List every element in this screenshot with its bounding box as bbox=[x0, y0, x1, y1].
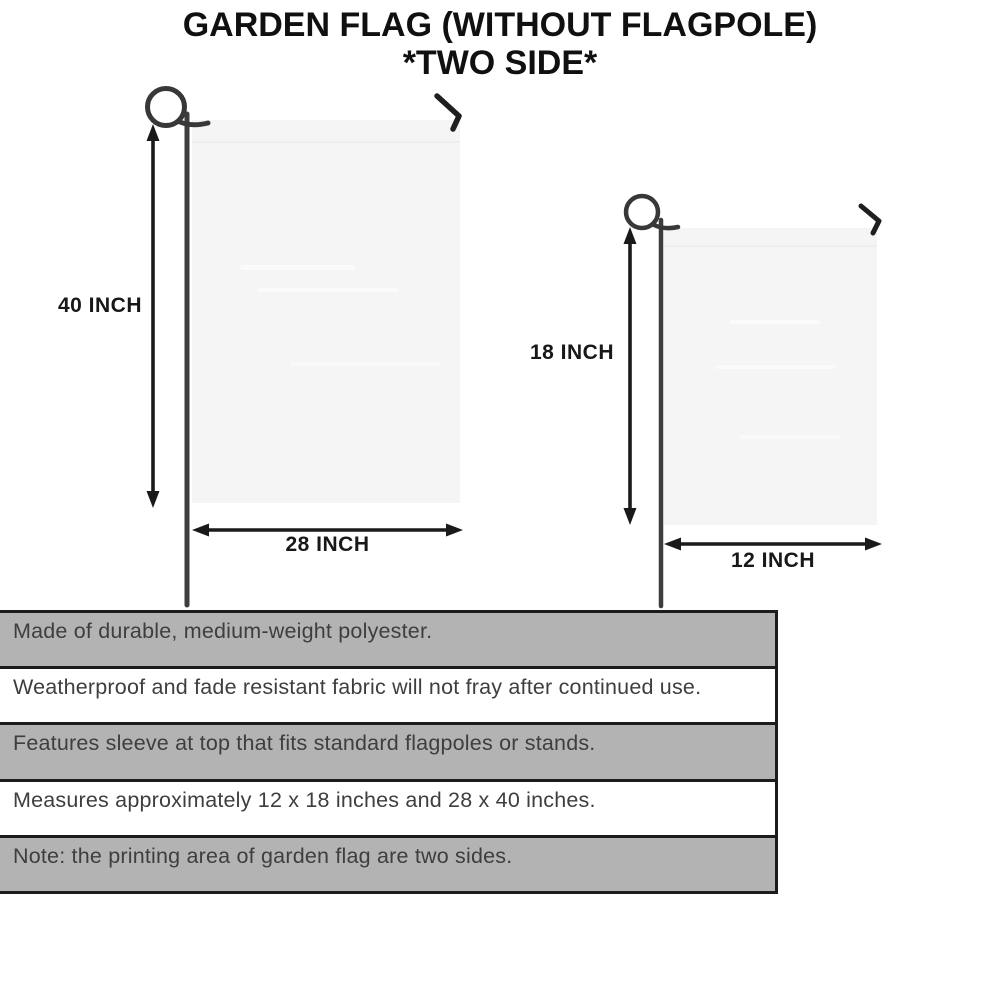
page-title: GARDEN FLAG (WITHOUT FLAGPOLE) *TWO SIDE… bbox=[0, 6, 1000, 82]
width-label-large: 28 INCH bbox=[191, 533, 464, 557]
height-arrow-small bbox=[617, 224, 643, 528]
height-arrow-large bbox=[140, 121, 166, 511]
height-label-large: 40 INCH bbox=[18, 294, 142, 318]
fold-highlight bbox=[240, 265, 355, 270]
arrow-head-down-icon bbox=[147, 491, 160, 508]
feature-row: Note: the printing area of garden flag a… bbox=[0, 838, 775, 891]
garden-flag-infographic: GARDEN FLAG (WITHOUT FLAGPOLE) *TWO SIDE… bbox=[0, 0, 1000, 1000]
fold-highlight bbox=[258, 288, 398, 292]
fold-highlight bbox=[290, 362, 440, 366]
flag-canvas-small bbox=[664, 228, 877, 525]
flagpole-loop-tail bbox=[654, 225, 678, 228]
width-label-small: 12 INCH bbox=[663, 549, 883, 573]
feature-table: Made of durable, medium-weight polyester… bbox=[0, 610, 778, 894]
feature-row: Made of durable, medium-weight polyester… bbox=[0, 613, 775, 669]
feature-row: Weatherproof and fade resistant fabric w… bbox=[0, 669, 775, 725]
flagpole-loop-tail bbox=[180, 122, 208, 125]
arrow-head-up-icon bbox=[147, 124, 160, 141]
feature-row: Features sleeve at top that fits standar… bbox=[0, 725, 775, 781]
title-line-2: *TWO SIDE* bbox=[0, 44, 1000, 82]
fold-highlight bbox=[740, 435, 840, 439]
fold-highlight bbox=[715, 365, 835, 369]
fold-highlight bbox=[730, 320, 820, 324]
feature-row: Measures approximately 12 x 18 inches an… bbox=[0, 782, 775, 838]
arrow-head-up-icon bbox=[624, 227, 637, 244]
arrow-head-down-icon bbox=[624, 508, 637, 525]
flag-canvas-large bbox=[192, 120, 460, 503]
height-label-small: 18 INCH bbox=[492, 341, 614, 365]
title-line-1: GARDEN FLAG (WITHOUT FLAGPOLE) bbox=[0, 6, 1000, 44]
